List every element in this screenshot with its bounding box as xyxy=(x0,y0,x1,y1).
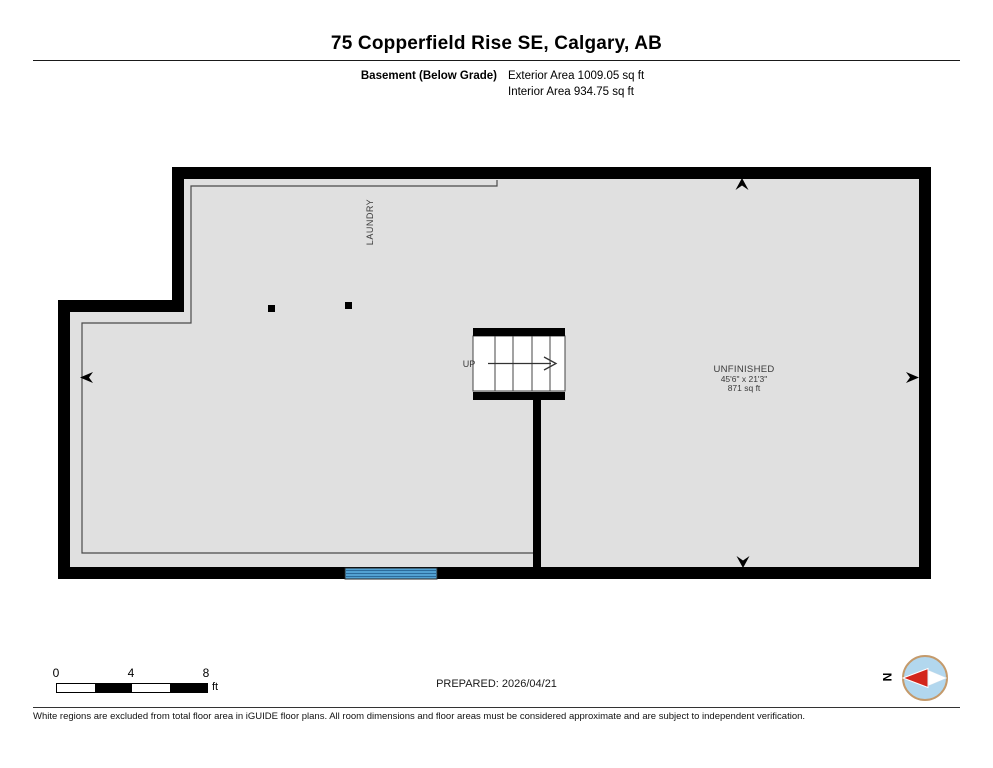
stair-bottom-wall xyxy=(473,392,565,400)
support-post xyxy=(268,305,275,312)
window xyxy=(345,568,437,579)
floor-plan-drawing: LAUNDRY UP UNFINISHED 45'6" x 21'3" 871 … xyxy=(0,0,993,768)
laundry-label: LAUNDRY xyxy=(365,199,375,245)
stairs-up-label: UP xyxy=(463,359,476,369)
stair-top-wall xyxy=(473,328,565,336)
interior-wall xyxy=(533,399,541,567)
footer-divider xyxy=(33,707,960,708)
floorplan-page: 75 Copperfield Rise SE, Calgary, AB Base… xyxy=(0,0,993,768)
prepared-date: PREPARED: 2026/04/21 xyxy=(0,678,993,690)
unfinished-room-area: 871 sq ft xyxy=(728,383,761,393)
disclaimer-text: White regions are excluded from total fl… xyxy=(33,711,968,722)
north-label: N xyxy=(880,673,894,682)
staircase xyxy=(473,328,565,400)
support-post xyxy=(345,302,352,309)
